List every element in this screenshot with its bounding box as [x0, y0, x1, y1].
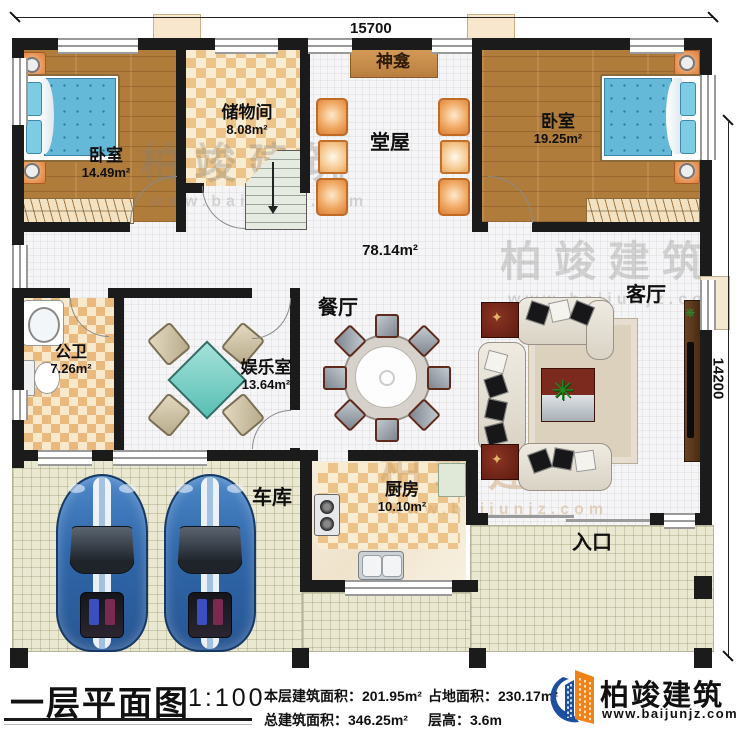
wardrobe-right — [586, 198, 700, 224]
room-label-open-area: 78.14m² — [350, 242, 430, 259]
bed-right — [600, 74, 702, 162]
side-table: ✦ — [481, 444, 519, 480]
scale-label: 1:100 — [188, 684, 266, 713]
wall — [12, 222, 130, 232]
sink-basin — [382, 555, 402, 577]
wall — [114, 288, 124, 460]
pillar — [10, 648, 28, 668]
car-windshield — [177, 526, 243, 574]
engine-part — [197, 599, 207, 625]
window — [664, 513, 695, 529]
stat-floor-height: 层高：3.6m — [428, 710, 502, 730]
mattress — [604, 78, 672, 156]
wardrobe-left — [20, 198, 134, 224]
dimension-height: 14200 — [710, 349, 727, 409]
room-label-dining: 餐厅 — [308, 297, 368, 320]
hall-armchair — [438, 98, 470, 136]
stat-floor-area: 本层建筑面积：201.95m² — [264, 686, 422, 706]
burner-icon — [320, 517, 334, 531]
side-table: ✦ — [481, 302, 519, 338]
compass-star-icon: ✦ — [491, 309, 503, 326]
window — [12, 390, 28, 420]
stat-value: 3.6m — [470, 712, 502, 728]
room-label-entrance: 入口 — [566, 532, 618, 555]
mattress — [44, 78, 116, 156]
pillow — [680, 120, 696, 154]
rear-porch-floor — [302, 592, 472, 652]
footer: 一层平面图 1:100 本层建筑面积：201.95m² 占地面积：230.17m… — [0, 672, 750, 734]
hall-tea-table — [440, 140, 470, 174]
sliding-door — [566, 519, 650, 522]
window — [700, 75, 716, 160]
lamp-icon — [679, 163, 695, 179]
dimension-width: 15700 — [350, 20, 392, 37]
room-label-game-room: 娱乐室 13.64m² — [226, 358, 306, 392]
engine-part — [89, 599, 99, 625]
plant-icon: ✳ — [551, 374, 574, 407]
brand-logo-icon — [548, 668, 596, 733]
window — [700, 280, 716, 330]
room-label-bedroom-right: 卧室 19.25m² — [516, 112, 600, 146]
dining-chair — [375, 314, 399, 338]
car-engine — [188, 592, 232, 638]
wall — [12, 38, 24, 58]
stat-value: 346.25m² — [348, 712, 408, 728]
lamp-icon — [679, 55, 695, 71]
kitchen-sink — [358, 551, 404, 580]
stat-land-area: 占地面积：230.17m² — [428, 686, 558, 706]
hall-armchair — [316, 178, 348, 216]
hall-armchair — [438, 178, 470, 216]
window — [113, 450, 207, 466]
room-label-living: 客厅 — [616, 284, 676, 307]
stair-arrow — [272, 162, 274, 210]
car — [164, 474, 256, 652]
wall — [472, 38, 482, 232]
wall — [352, 38, 432, 50]
stair-arrow-head — [268, 206, 278, 214]
stat-label: 本层建筑面积： — [264, 688, 362, 704]
sliding-door — [488, 515, 574, 518]
window — [12, 245, 28, 288]
brand-url: www.baijunjz.com — [602, 706, 738, 721]
wall — [695, 513, 712, 525]
wall — [300, 38, 310, 193]
engine-part — [213, 599, 223, 625]
bathroom-vanity — [22, 300, 64, 346]
wall — [12, 450, 38, 461]
window — [215, 38, 278, 54]
car-headlight — [227, 484, 244, 493]
window — [308, 38, 352, 54]
room-label-bathroom: 公卫 7.26m² — [36, 344, 106, 377]
window — [432, 38, 472, 54]
car-headlight — [176, 484, 193, 493]
title-underline — [4, 718, 252, 721]
stove — [314, 494, 340, 536]
wall — [472, 38, 630, 50]
burner-icon — [320, 500, 334, 514]
window — [12, 58, 28, 125]
pillar — [694, 648, 712, 668]
window — [58, 38, 138, 54]
car — [56, 474, 148, 652]
window — [38, 450, 92, 466]
pillar — [694, 576, 712, 599]
pillar — [469, 648, 486, 668]
stat-value: 201.95m² — [362, 688, 422, 704]
pillow — [680, 82, 696, 116]
wall — [472, 222, 488, 232]
stat-total-area: 总建筑面积：346.25m² — [264, 710, 408, 730]
sofa-pillow — [484, 398, 508, 422]
room-label-bedroom-left: 卧室 14.49m² — [66, 146, 146, 180]
tv — [687, 342, 694, 438]
plant-small-icon: ❋ — [685, 306, 695, 320]
wall — [650, 513, 664, 525]
fridge — [438, 463, 466, 497]
wall — [466, 513, 488, 525]
floor-plan-page: 柏竣建筑 www.baijunjz.com 柏竣建筑 www.baijunjz.… — [0, 0, 750, 734]
dining-table-center — [379, 370, 395, 386]
dining-chair — [375, 418, 399, 442]
brand-logo-svg — [548, 668, 596, 728]
title-underline-thin — [4, 724, 252, 725]
wall — [300, 450, 312, 592]
hall-tea-table — [318, 140, 348, 174]
wall — [108, 288, 252, 298]
wall — [207, 450, 318, 461]
window — [345, 580, 452, 596]
room-label-hall: 堂屋 — [350, 132, 430, 155]
room-label-storage: 储物间 8.08m² — [203, 103, 291, 137]
wall — [12, 288, 24, 390]
dimension-line-top — [14, 17, 714, 18]
dining-chair — [323, 366, 347, 390]
wall — [12, 288, 70, 298]
compass-star-icon: ✦ — [491, 451, 503, 468]
dimension-line-right — [728, 122, 729, 658]
room-label-kitchen: 厨房 10.10m² — [364, 480, 440, 514]
dining-chair — [427, 366, 451, 390]
hall-armchair — [316, 98, 348, 136]
engine-part — [105, 599, 115, 625]
pillow — [26, 82, 42, 116]
lamp-icon — [24, 163, 40, 179]
stat-label: 层高： — [428, 712, 470, 728]
wall — [176, 38, 186, 232]
room-label-garage: 车库 — [246, 487, 298, 510]
pillar — [292, 648, 309, 668]
pillow — [26, 120, 42, 154]
sink-basin — [28, 307, 60, 343]
window — [630, 38, 684, 54]
wall — [532, 222, 712, 232]
sofa-pillow — [551, 447, 574, 470]
car-headlight — [119, 484, 136, 493]
wall — [452, 580, 478, 592]
room-label-shrine: 神龛 — [352, 52, 434, 72]
wall — [348, 450, 478, 461]
wall — [700, 38, 712, 75]
car-windshield — [69, 526, 135, 574]
sofa-pillow — [574, 450, 597, 473]
wall — [700, 160, 712, 280]
stat-label: 占地面积： — [428, 688, 498, 704]
car-engine — [80, 592, 124, 638]
sofa-pillow — [548, 299, 572, 323]
stat-label: 总建筑面积： — [264, 712, 348, 728]
sink-basin — [362, 555, 382, 577]
wall — [92, 450, 113, 461]
wall — [300, 580, 345, 592]
car-headlight — [68, 484, 85, 493]
